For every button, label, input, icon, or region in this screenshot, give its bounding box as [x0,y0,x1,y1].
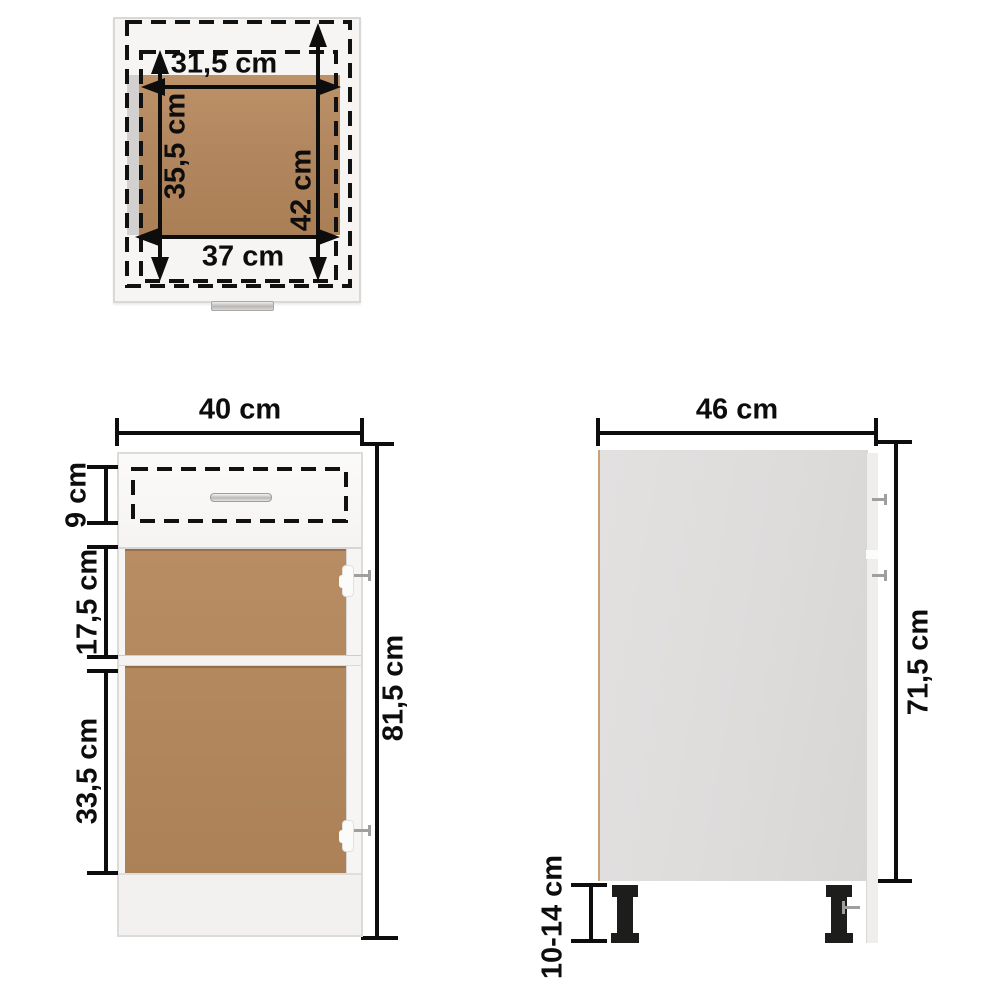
adjustable-leg-flange [826,885,852,897]
hinge-pin-cap [884,570,887,581]
adjustable-leg-shaft [617,897,633,934]
hinge-pin-cap [884,494,887,505]
leg-pin-cap [842,901,845,914]
dimension-line-leg-height [589,883,593,943]
dimension-label-leg-height: 10-14 cm [539,855,568,979]
dimension-label-depth: 46 cm [696,396,778,425]
dimension-tick [596,418,600,446]
side-view: 46 cm 71,5 cm 10-14 cm [0,0,1000,1000]
adjustable-leg-flange [612,885,638,897]
dimension-label-body-height: 71,5 cm [905,609,934,715]
dimension-tick [571,883,607,887]
dimension-tick [874,879,912,883]
adjustable-leg-foot [825,933,853,943]
door-front-edge [866,453,878,943]
dimension-tick [571,939,607,943]
cabinet-side-panel [598,450,868,881]
cabinet-dimension-diagram: 31,5 cm 37 cm 35,5 cm 42 cm 40 cm 81,5 c… [0,0,1000,1000]
door-edge-notch [866,550,878,559]
adjustable-leg-foot [611,933,639,943]
dimension-line-body-height [894,442,898,882]
dimension-line-depth [598,431,878,435]
